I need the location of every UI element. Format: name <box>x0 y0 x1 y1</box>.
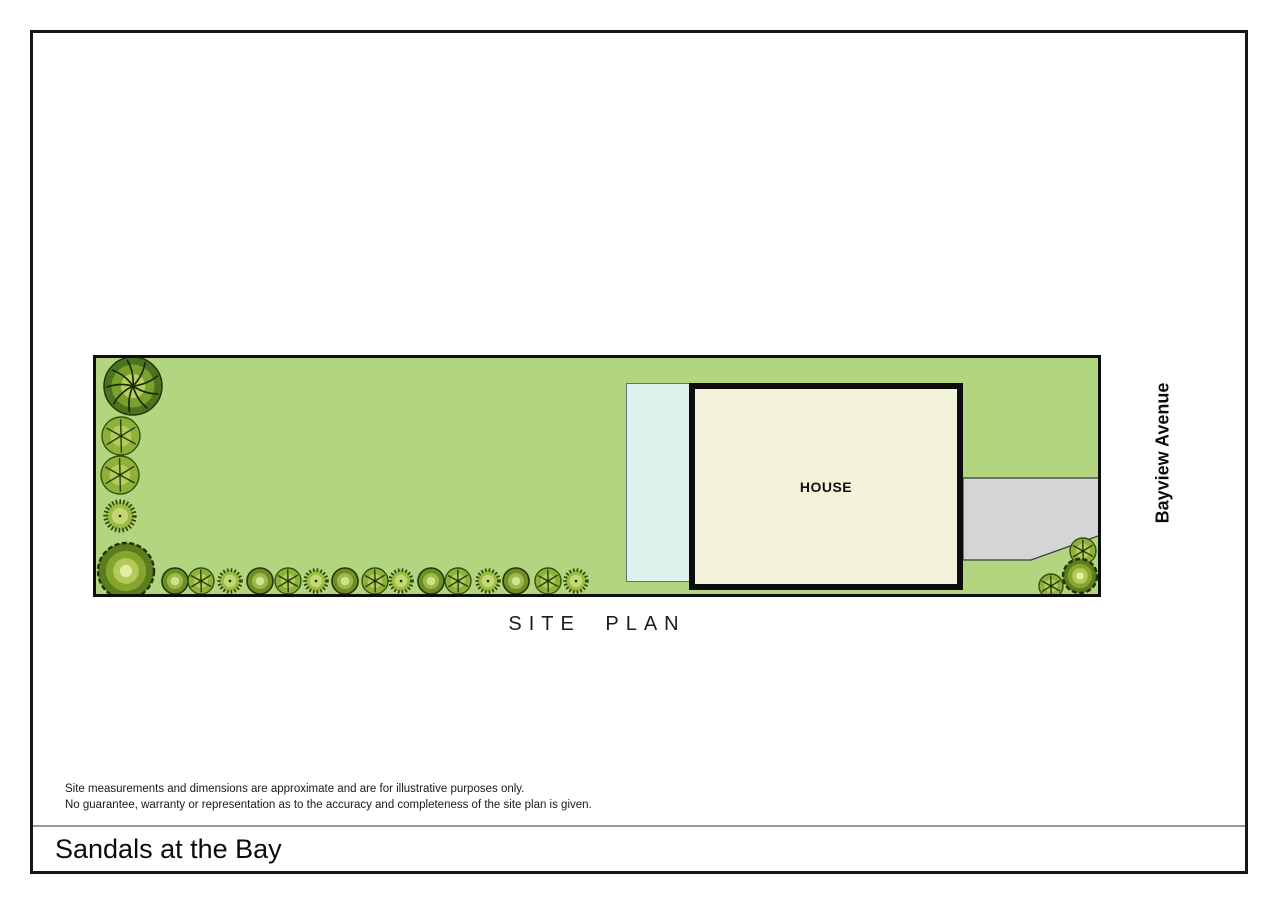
tree-blob <box>162 568 188 594</box>
site-plan-caption: SITE PLAN <box>93 613 1101 636</box>
tree-blob <box>503 568 529 594</box>
title-bar: Sandals at the Bay <box>33 825 1245 871</box>
house-label: HOUSE <box>800 479 852 495</box>
tree-star <box>362 568 388 594</box>
tree-blob <box>332 568 358 594</box>
tree-spiky <box>477 570 499 592</box>
tree-star <box>102 417 140 455</box>
tree-spiky <box>390 570 412 592</box>
page-title: Sandals at the Bay <box>55 834 282 865</box>
tree-star <box>1039 574 1063 597</box>
swimming-pool <box>626 383 690 582</box>
tree-bush-large <box>98 543 154 597</box>
tree-bush-large <box>1063 559 1097 593</box>
tree-star <box>101 456 139 494</box>
street-label: Bayview Avenue <box>1153 383 1174 524</box>
tree-star <box>535 568 561 594</box>
site-plan: HOUSE <box>93 355 1101 597</box>
tree-star <box>445 568 471 594</box>
tree-star <box>275 568 301 594</box>
tree-blob <box>247 568 273 594</box>
disclaimer: Site measurements and dimensions are app… <box>65 781 592 813</box>
tree-star <box>188 568 214 594</box>
tree-blob <box>418 568 444 594</box>
house-footprint: HOUSE <box>689 383 963 590</box>
tree-spiky <box>106 502 135 531</box>
disclaimer-line-1: Site measurements and dimensions are app… <box>65 781 592 797</box>
tree-spiky <box>305 570 327 592</box>
tree-canopy-large <box>104 357 162 415</box>
disclaimer-line-2: No guarantee, warranty or representation… <box>65 797 592 813</box>
page-frame: HOUSE SITE PLAN Bayview Avenue Site meas… <box>30 30 1248 874</box>
tree-spiky <box>565 570 587 592</box>
tree-spiky <box>219 570 241 592</box>
